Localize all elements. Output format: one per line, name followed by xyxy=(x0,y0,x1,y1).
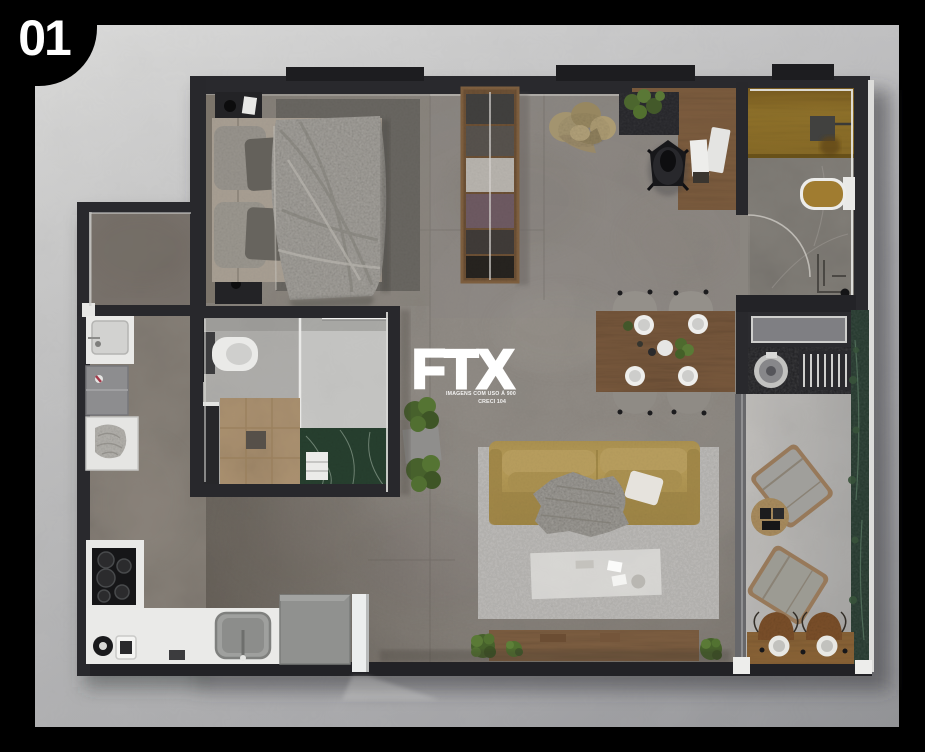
svg-text:IMAGENS COM USO Á 900: IMAGENS COM USO Á 900 xyxy=(446,390,516,397)
svg-text:01: 01 xyxy=(18,10,71,66)
svg-text:CRECI 104: CRECI 104 xyxy=(478,399,507,405)
